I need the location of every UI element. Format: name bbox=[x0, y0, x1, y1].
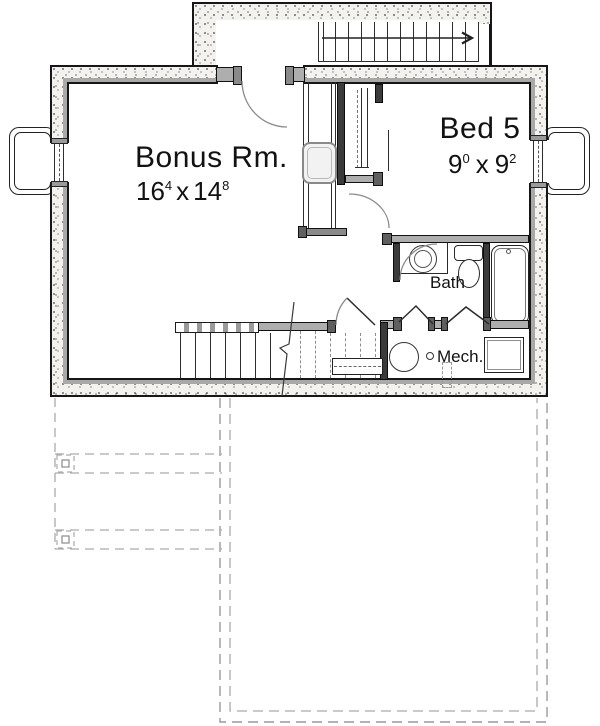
post-footing-post bbox=[62, 536, 69, 543]
post-footing-post bbox=[62, 460, 69, 467]
deck-outline-inner-dashed bbox=[230, 398, 537, 711]
bed5-door-swing-arc bbox=[349, 194, 389, 228]
bath-door-swing-arc bbox=[400, 244, 437, 280]
stair-direction-arrow bbox=[322, 33, 472, 44]
hall-closet-door-leaves bbox=[399, 306, 433, 324]
linework-overlay bbox=[0, 0, 600, 726]
floor-plan-canvas: Bonus Rm. 164x148 Bed 5 90x92 Bath Mech. bbox=[0, 0, 600, 726]
deck-outline-outer-dashed bbox=[220, 398, 547, 722]
stair-door-swing-arc bbox=[336, 298, 347, 325]
bonus-door-swing-arc bbox=[242, 81, 287, 127]
mech-door-leaves bbox=[446, 307, 489, 324]
stair-break-line bbox=[280, 302, 294, 396]
stair-door-leaf bbox=[347, 298, 375, 325]
